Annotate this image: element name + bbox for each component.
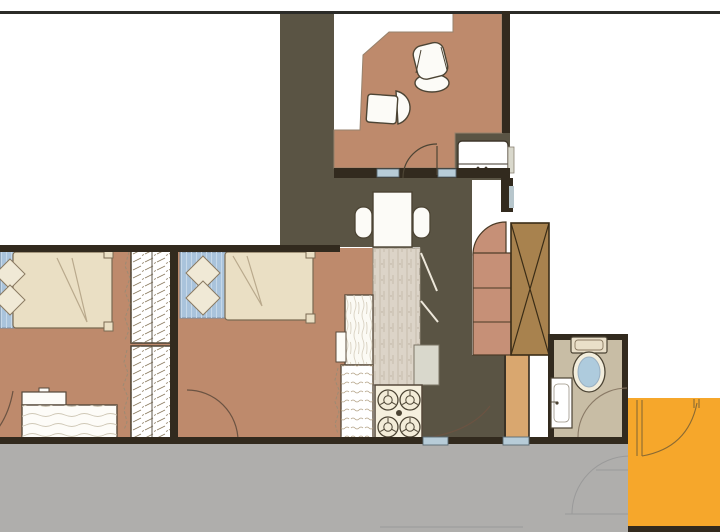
threshold-office-1	[377, 169, 399, 177]
stove	[375, 385, 422, 439]
wardrobe-bedroom1	[123, 247, 173, 438]
passage-floor	[506, 355, 529, 438]
bathroom-sink	[551, 378, 572, 428]
bed2-blanket	[225, 252, 313, 320]
fridge	[458, 141, 508, 172]
dining-table	[373, 192, 412, 247]
bed2-blanket-ear-bottom	[306, 314, 315, 323]
apartment-bottom-wall	[0, 437, 628, 444]
burner-4	[400, 417, 420, 437]
bed-2	[180, 249, 315, 323]
orange-room	[628, 398, 720, 532]
bed1-blanket	[13, 252, 112, 328]
threshold-office-2	[438, 169, 456, 177]
burner-1	[378, 390, 398, 410]
entry-column	[280, 13, 334, 247]
floor-plan	[0, 0, 720, 532]
bed-1	[0, 248, 113, 331]
storage-units	[473, 222, 549, 355]
orange-room-bottom-wall	[628, 526, 720, 532]
dining-chair-left	[355, 207, 372, 238]
bathroom	[551, 337, 627, 437]
threshold-passage	[503, 437, 529, 445]
kitchen-side-shelf	[336, 332, 346, 362]
office-chair-2	[366, 91, 410, 124]
shelf-unit	[473, 253, 511, 355]
burner-3	[378, 417, 398, 437]
bed1-blanket-ear-bottom	[104, 322, 113, 331]
wardrobe-hall	[511, 223, 549, 355]
kitchen-dark-floor	[420, 247, 472, 438]
site-boundary-line	[0, 11, 720, 14]
dining-chair-right	[413, 207, 430, 238]
office-bottom-wall	[334, 168, 510, 178]
stove-knob	[396, 410, 402, 416]
threshold-kitchen	[423, 437, 448, 445]
riser-vent	[509, 186, 514, 208]
utility-riser	[501, 178, 514, 212]
kitchen-sink	[414, 345, 439, 385]
office-right-wall	[502, 11, 510, 133]
office-chair-1	[411, 41, 449, 92]
building-corridor-floor	[0, 444, 720, 532]
bedroom-divider-wall	[170, 248, 178, 438]
toilet	[571, 337, 607, 392]
lower-hall-floor	[472, 355, 506, 438]
burner-2	[400, 390, 420, 410]
toilet-bowl-water	[578, 357, 600, 387]
